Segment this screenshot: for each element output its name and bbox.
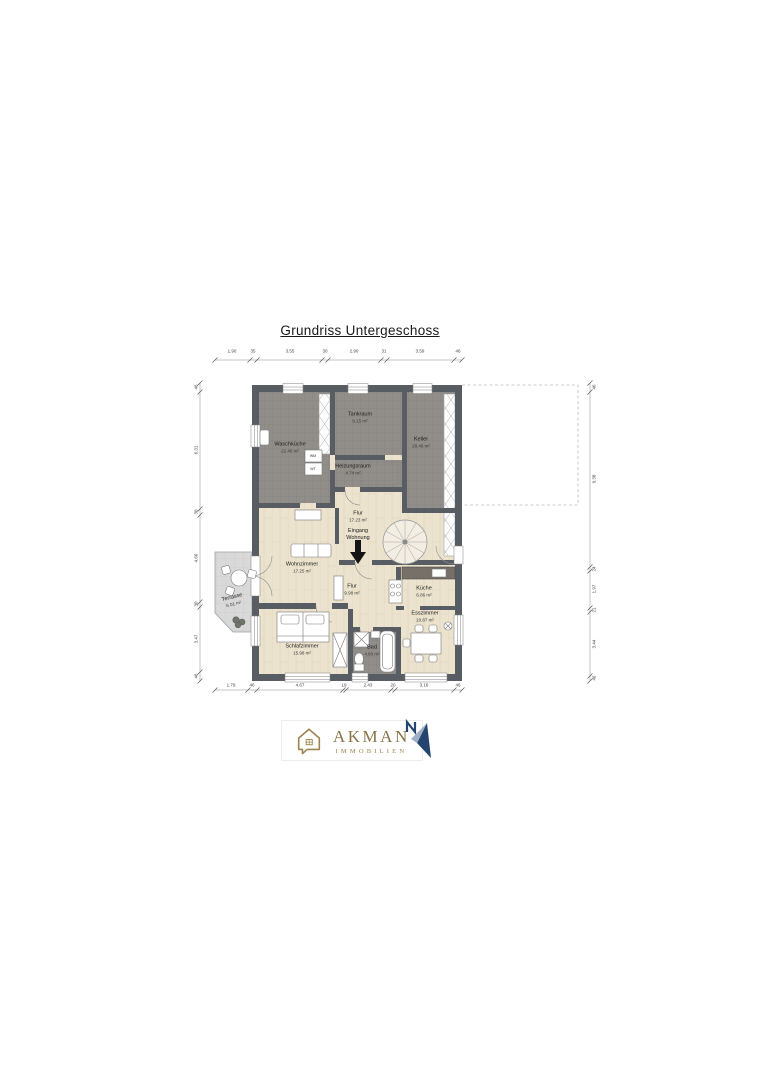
kitchen-counter: [402, 567, 455, 579]
room-label-flur-oben: Flur 17.23 m²: [349, 511, 367, 524]
dim-label: 4.66: [194, 554, 199, 563]
room-label-heizungsraum: Heizungsraum 4.74 m²: [335, 464, 370, 477]
chair: [429, 625, 437, 632]
stove: [389, 580, 402, 603]
room-label-waschkueche: Waschküche 22.40 m²: [274, 442, 305, 455]
bath-sink: [371, 631, 380, 638]
room-label-schlafzimmer: Schlafzimmer 15.98 m²: [285, 644, 318, 657]
dim-label: 24: [592, 566, 597, 571]
washing-machine-label: WM: [310, 454, 316, 458]
floorplan-page: Grundriss Untergeschoss: [0, 0, 764, 1080]
dim-label: 46: [194, 673, 199, 678]
terrace-chair: [221, 565, 231, 575]
room-label-keller: Keller 28.46 m²: [412, 437, 430, 450]
terrace-table: [231, 570, 247, 586]
sideboard-top: [295, 510, 321, 520]
chair: [415, 655, 423, 662]
dining-table: [411, 633, 441, 654]
room-label-tankraum: Tankraum 9.15 m²: [348, 412, 372, 425]
dim-label: 35: [250, 349, 255, 354]
house-icon: [294, 725, 324, 756]
kitchen-sink: [432, 569, 446, 577]
dim-label: 30: [322, 349, 327, 354]
dim-label: 46: [455, 349, 460, 354]
north-arrow-icon: [398, 716, 436, 762]
dim-label: 46: [455, 683, 460, 688]
sofa: [291, 544, 331, 557]
chair: [403, 639, 410, 647]
dim-label: 2.43: [364, 683, 373, 688]
room-label-wohnzimmer: Wohnzimmer 17.25 m²: [286, 562, 318, 575]
dim-label: 3.59: [416, 349, 425, 354]
dim-label: 21: [592, 607, 597, 612]
dim-label: 46: [592, 675, 597, 680]
toilet: [355, 653, 364, 665]
dim-label: 3.47: [194, 635, 199, 644]
dim-label: 2.90: [350, 349, 359, 354]
dashed-footprint-outline: [462, 385, 578, 505]
dim-label: 31: [381, 349, 386, 354]
dim-label: 19: [341, 683, 346, 688]
dryer-label: WT: [310, 467, 315, 471]
dim-label: 6.31: [194, 446, 199, 455]
dim-label: 1.79: [227, 683, 236, 688]
dim-label: 3.44: [592, 640, 597, 649]
dim-label: 3.16: [420, 683, 429, 688]
dim-label: 30: [194, 601, 199, 606]
dim-label: 4.67: [296, 683, 305, 688]
spiral-staircase: [383, 520, 427, 564]
terrace-chair: [247, 569, 256, 578]
chair: [429, 655, 437, 662]
room-label-esszimmer: Esszimmer 10.87 m²: [411, 611, 438, 624]
entrance-annotation: Eingang Wohnung: [346, 528, 369, 542]
dim-label: 9.38: [592, 475, 597, 484]
floorplan-drawing: [0, 0, 764, 1080]
sideboard: [334, 576, 343, 600]
dim-label: 46: [194, 384, 199, 389]
chair: [415, 625, 423, 632]
pillow: [306, 615, 324, 624]
dim-label: 1.97: [592, 585, 597, 594]
room-label-bad: Bad 4.60 m²: [364, 645, 379, 658]
pillow: [281, 615, 299, 624]
room-label-kueche: Küche 6.86 m²: [416, 586, 432, 599]
dim-label: 46: [249, 683, 254, 688]
dim-label: 20: [390, 683, 395, 688]
dim-label: 30: [194, 509, 199, 514]
dim-label: 46: [592, 384, 597, 389]
dim-label: 1.90: [228, 349, 237, 354]
dim-label: 3.55: [286, 349, 295, 354]
room-label-flur-unten: Flur 9.98 m²: [344, 584, 359, 597]
laundry-sink: [260, 430, 269, 445]
toilet-tank: [354, 664, 364, 671]
